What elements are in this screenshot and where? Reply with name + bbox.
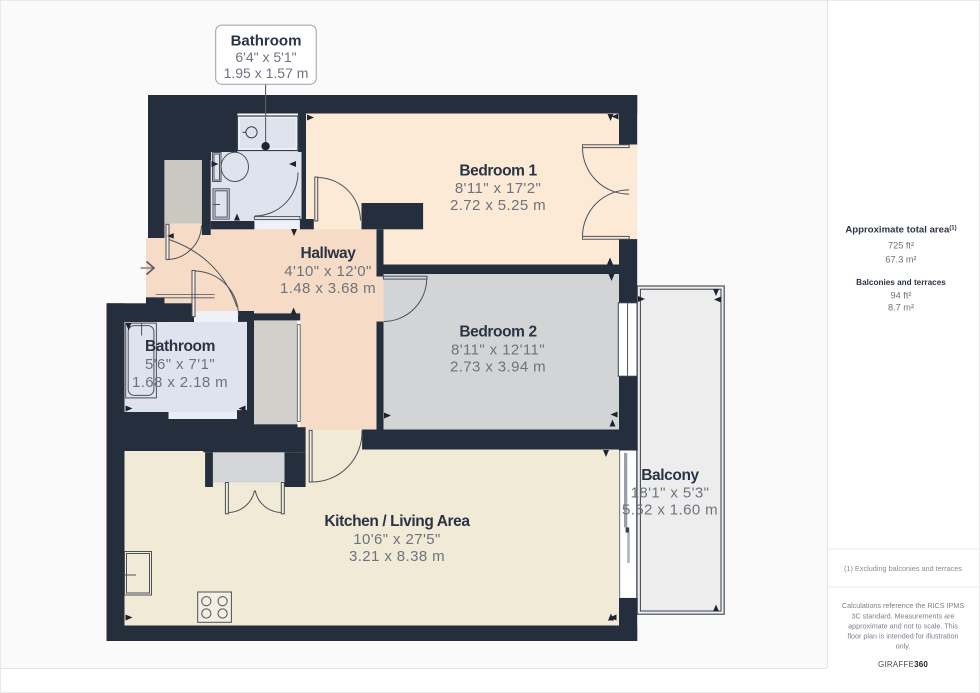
svg-text:725 ft²: 725 ft² (888, 241, 914, 251)
svg-text:18'1" x 5'3": 18'1" x 5'3" (631, 485, 710, 502)
svg-text:8.7 m²: 8.7 m² (888, 303, 914, 313)
svg-text:5'6" x 7'1": 5'6" x 7'1" (145, 356, 215, 373)
svg-text:1.68 x 2.18 m: 1.68 x 2.18 m (132, 374, 228, 391)
svg-text:Calculations reference the RIC: Calculations reference the RICS IPMS (842, 601, 964, 610)
svg-text:94 ft²: 94 ft² (891, 291, 912, 301)
svg-text:5.52 x 1.60 m: 5.52 x 1.60 m (622, 502, 718, 519)
svg-text:Bathroom: Bathroom (145, 338, 215, 355)
svg-text:Bedroom 1: Bedroom 1 (459, 163, 537, 180)
svg-text:2.73 x 3.94 m: 2.73 x 3.94 m (450, 359, 546, 376)
svg-text:Bedroom 2: Bedroom 2 (459, 324, 536, 341)
svg-text:(1) Excluding balconies and te: (1) Excluding balconies and terraces (844, 564, 962, 573)
svg-text:approximate and not to scale.: approximate and not to scale. This (848, 622, 958, 631)
svg-text:GIRAFFE360: GIRAFFE360 (878, 660, 928, 669)
svg-text:8'11" x 17'2": 8'11" x 17'2" (455, 180, 541, 197)
svg-text:8'11" x 12'11": 8'11" x 12'11" (451, 342, 545, 359)
svg-text:4'10" x 12'0": 4'10" x 12'0" (284, 263, 371, 280)
svg-text:10'6" x 27'5": 10'6" x 27'5" (353, 531, 440, 548)
svg-text:6'4" x 5'1": 6'4" x 5'1" (235, 49, 296, 65)
svg-text:Bathroom: Bathroom (231, 33, 302, 50)
svg-text:Kitchen / Living Area: Kitchen / Living Area (324, 513, 470, 530)
svg-text:only.: only. (896, 642, 911, 651)
svg-text:1.48 x 3.68 m: 1.48 x 3.68 m (280, 280, 376, 297)
svg-text:67.3 m²: 67.3 m² (885, 255, 916, 265)
svg-text:Hallway: Hallway (301, 245, 357, 262)
svg-text:2.72 x 5.25 m: 2.72 x 5.25 m (450, 197, 546, 214)
svg-text:Balconies and terraces: Balconies and terraces (856, 278, 946, 287)
svg-text:3.21 x 8.38 m: 3.21 x 8.38 m (349, 548, 445, 565)
svg-text:3C standard. Measurements are: 3C standard. Measurements are (851, 612, 954, 621)
svg-text:Balcony: Balcony (641, 467, 699, 484)
svg-text:floor plan is intended for ill: floor plan is intended for illustration (847, 632, 958, 641)
svg-text:1.95 x 1.57 m: 1.95 x 1.57 m (224, 65, 309, 81)
svg-text:Approximate total area(1): Approximate total area(1) (845, 225, 956, 236)
